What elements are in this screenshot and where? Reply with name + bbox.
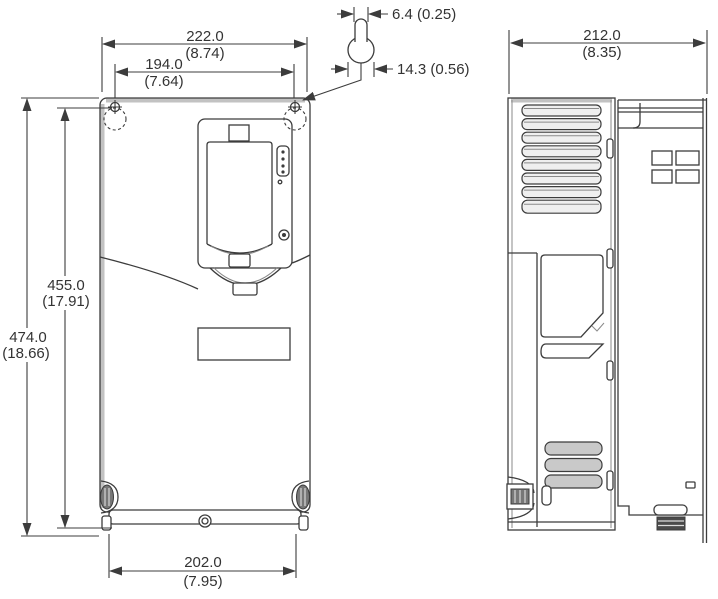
dim-overall-height-mm: 474.0 xyxy=(9,329,47,346)
keyhole-detail xyxy=(303,19,374,100)
front-view xyxy=(100,98,310,530)
bottom-foot-right xyxy=(299,516,308,530)
dim-hole-diameter: 14.3 (0.56) xyxy=(397,61,470,78)
edge-clip xyxy=(607,249,613,268)
bottom-screw-hole xyxy=(199,515,211,527)
edge-clip xyxy=(607,471,613,490)
heatsink-slots xyxy=(652,151,699,183)
keyhole-slot xyxy=(355,19,367,42)
dim-slot-width: 6.4 (0.25) xyxy=(392,6,456,23)
dim-depth-mm: 212.0 xyxy=(583,27,621,44)
dim-mounting-width-mm: 194.0 xyxy=(145,56,183,73)
led-dot xyxy=(281,164,284,167)
heatsink-section xyxy=(618,98,707,543)
top-vent-louvers xyxy=(522,105,601,213)
keypad-latch-tab xyxy=(229,254,250,267)
dim-bottom-width-in: (7.95) xyxy=(183,573,222,590)
cradle-notch xyxy=(233,283,257,295)
dim-depth-in: (8.35) xyxy=(582,44,621,61)
dim-overall-width-mm: 222.0 xyxy=(186,28,224,45)
small-slot xyxy=(686,482,695,488)
led-dot xyxy=(281,170,284,173)
nameplate-label xyxy=(198,328,290,360)
terminal-block xyxy=(654,505,687,530)
dimension-drawing: 222.0 (8.74) 194.0 (7.64) 6.4 (0.25) 14.… xyxy=(0,0,718,599)
din-hook xyxy=(633,103,640,128)
mounting-plane-edge xyxy=(703,98,707,543)
bottom-vent-louvers xyxy=(545,442,602,488)
dim-mounting-height-mm: 455.0 xyxy=(47,277,85,294)
front-body-fill xyxy=(100,98,310,512)
dim-bottom-width-mm: 202.0 xyxy=(184,554,222,571)
dim-mounting-height-in: (17.91) xyxy=(42,293,90,310)
led-dot xyxy=(281,150,284,153)
dim-overall-height-in: (18.66) xyxy=(2,345,50,362)
side-view xyxy=(507,98,707,543)
dim-overall-width-in: (8.74) xyxy=(185,45,224,62)
edge-clip xyxy=(607,361,613,380)
edge-clip xyxy=(607,139,613,158)
dim-mounting-width-in: (7.64) xyxy=(144,73,183,90)
led-dot xyxy=(281,157,284,160)
